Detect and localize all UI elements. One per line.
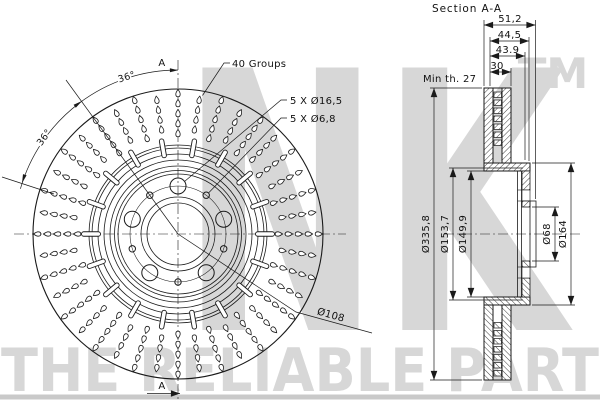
arc-arrowhead — [22, 174, 27, 183]
drill-hole — [131, 96, 137, 104]
hat-inner-label: Ø149,9 — [457, 215, 469, 253]
drill-hole — [109, 319, 117, 328]
width-43-9-label: 43.9 — [496, 45, 519, 56]
drill-hole — [40, 274, 48, 280]
drill-hole — [154, 96, 160, 104]
drill-hole — [92, 148, 100, 156]
drill-hole — [68, 153, 77, 161]
drill-hole — [78, 326, 86, 334]
drill-hole — [53, 169, 62, 176]
drill-hole — [92, 289, 101, 297]
drill-hole — [99, 305, 107, 313]
bore-label: Ø68 — [541, 223, 553, 245]
drill-hole — [92, 312, 100, 320]
drill-hole — [70, 283, 79, 290]
watermark-trademark: TM — [518, 49, 588, 98]
technical-drawing: NK TM THE RELIABLE PART — [0, 0, 600, 400]
drill-hole — [126, 324, 133, 333]
drill-hole — [43, 232, 50, 236]
drill-hole — [99, 155, 107, 163]
drill-hole — [79, 182, 88, 189]
vane-tick — [256, 232, 275, 237]
drill-hole — [50, 212, 58, 218]
drill-hole — [159, 125, 165, 133]
drill-hole — [49, 271, 57, 277]
drill-hole — [69, 215, 77, 221]
drill-hole — [137, 115, 143, 123]
drill-hole — [85, 141, 93, 149]
drill-hole — [59, 193, 67, 199]
drill-hole — [84, 295, 93, 303]
vane-block-section — [494, 132, 502, 138]
drill-hole — [76, 159, 85, 167]
drill-hole — [84, 165, 93, 173]
angle-dimension — [2, 68, 178, 234]
drill-hole — [134, 105, 140, 113]
groups-label: 40 Groups — [232, 59, 286, 70]
mounting-bolt-hole — [522, 190, 530, 201]
vane-tick — [159, 139, 167, 158]
drill-hole — [68, 265, 76, 271]
drill-hole — [59, 268, 67, 274]
vane-tick — [82, 232, 101, 237]
width-44-5-label: 44,5 — [498, 30, 521, 41]
min-thickness-note: Min th. 27 — [423, 74, 476, 85]
drill-hole — [156, 106, 162, 114]
angle-ray-72 — [2, 177, 54, 194]
vane-block-section — [494, 100, 502, 106]
disc-thickness-label: 30 — [490, 61, 503, 72]
drill-hole — [117, 118, 124, 127]
drill-hole — [122, 126, 129, 135]
drill-hole — [68, 307, 77, 315]
drill-hole — [140, 124, 146, 132]
section-marker-bottom: A — [158, 381, 165, 392]
drill-hole — [68, 196, 76, 202]
drill-hole — [78, 134, 86, 142]
pin-holes-label: 5 X Ø6,8 — [290, 113, 336, 125]
overall-width-label: 51,2 — [498, 14, 521, 25]
hat-flange-section — [484, 163, 530, 171]
drill-hole — [144, 134, 150, 142]
bolt-holes-label: 5 X Ø16,5 — [290, 95, 342, 107]
vane-tick — [128, 300, 141, 319]
drill-hole — [60, 213, 68, 219]
drill-hole — [62, 288, 71, 295]
drill-hole — [85, 319, 93, 327]
drill-hole — [53, 232, 60, 236]
drill-hole — [78, 200, 86, 206]
vane-blocks — [494, 92, 502, 146]
drill-hole — [70, 178, 79, 185]
drill-hole — [157, 116, 163, 124]
hat-wall-section — [522, 171, 530, 190]
angle-lower-label: 36° — [35, 127, 54, 148]
vane-block-section — [494, 108, 502, 114]
outboard-plate-section — [484, 88, 493, 163]
vane-tick — [128, 149, 141, 168]
angle-ray-36 — [66, 80, 178, 234]
drill-hole — [79, 278, 88, 285]
section-marker-top: A — [158, 58, 165, 69]
drawing-page: NK TM THE RELIABLE PART — [0, 0, 600, 400]
drill-hole — [60, 249, 68, 255]
drill-hole — [73, 232, 80, 236]
vane-block-section — [494, 140, 502, 146]
drill-hole — [69, 248, 77, 254]
drill-hole — [126, 135, 133, 144]
outer-diameter-label: Ø335,8 — [420, 215, 432, 253]
drill-hole — [40, 253, 48, 259]
hat-wall-section — [522, 201, 530, 207]
drill-hole — [33, 232, 40, 236]
watermark-underline — [0, 395, 600, 400]
inboard-plate-section — [502, 88, 511, 163]
drill-hole — [115, 311, 123, 320]
vane-block-section — [494, 116, 502, 122]
drill-hole — [103, 328, 111, 337]
drill-hole — [113, 109, 120, 118]
vane-block-section — [494, 124, 502, 130]
drill-hole — [40, 210, 48, 216]
drill-hole — [53, 292, 62, 299]
vane-tick — [159, 310, 167, 329]
section-title: Section A-A — [432, 3, 502, 15]
drill-hole — [63, 232, 70, 236]
angle-upper-label: 36° — [117, 70, 137, 86]
drill-hole — [144, 326, 150, 334]
vane-block-section — [494, 92, 502, 98]
drill-hole — [92, 171, 101, 179]
arc-arrowhead — [170, 68, 178, 72]
drill-hole — [62, 173, 71, 180]
drill-hole — [50, 251, 58, 257]
drill-hole — [78, 262, 86, 268]
hat-outer-label: Ø153,7 — [439, 215, 451, 253]
pilot-label: Ø164 — [557, 220, 569, 248]
drill-hole — [76, 301, 85, 309]
